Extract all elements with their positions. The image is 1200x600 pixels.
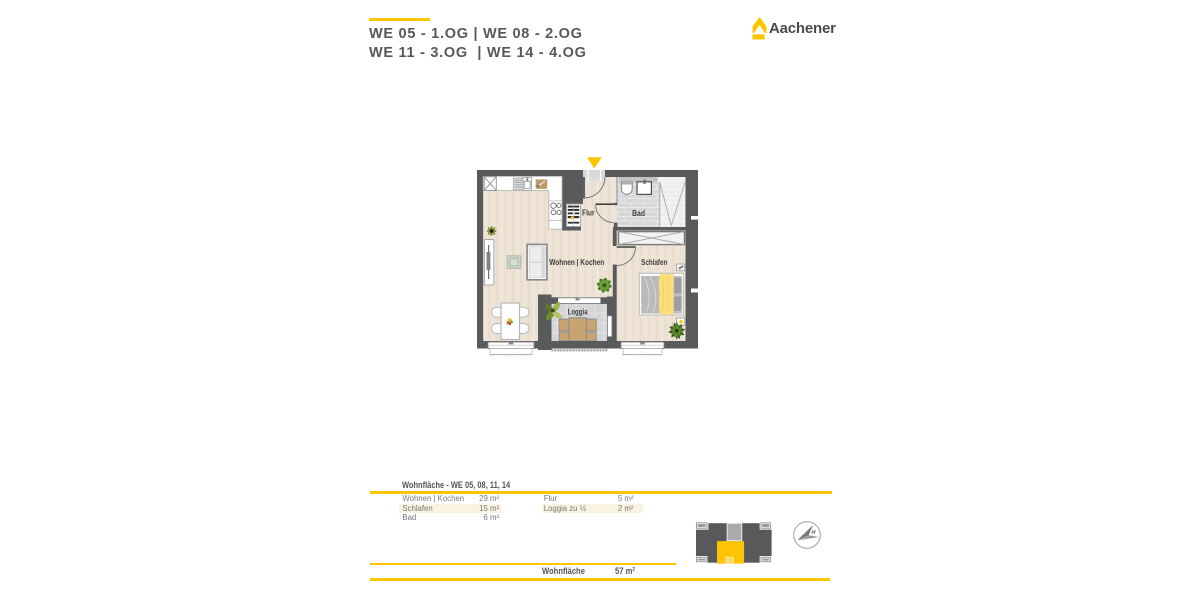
svg-text:Loggia: Loggia [568, 307, 588, 317]
svg-text:Bad: Bad [632, 208, 645, 218]
svg-text:Flur: Flur [582, 208, 595, 218]
svg-text:Schlafen: Schlafen [641, 257, 667, 267]
svg-text:Wohnen | Kochen: Wohnen | Kochen [549, 257, 604, 267]
